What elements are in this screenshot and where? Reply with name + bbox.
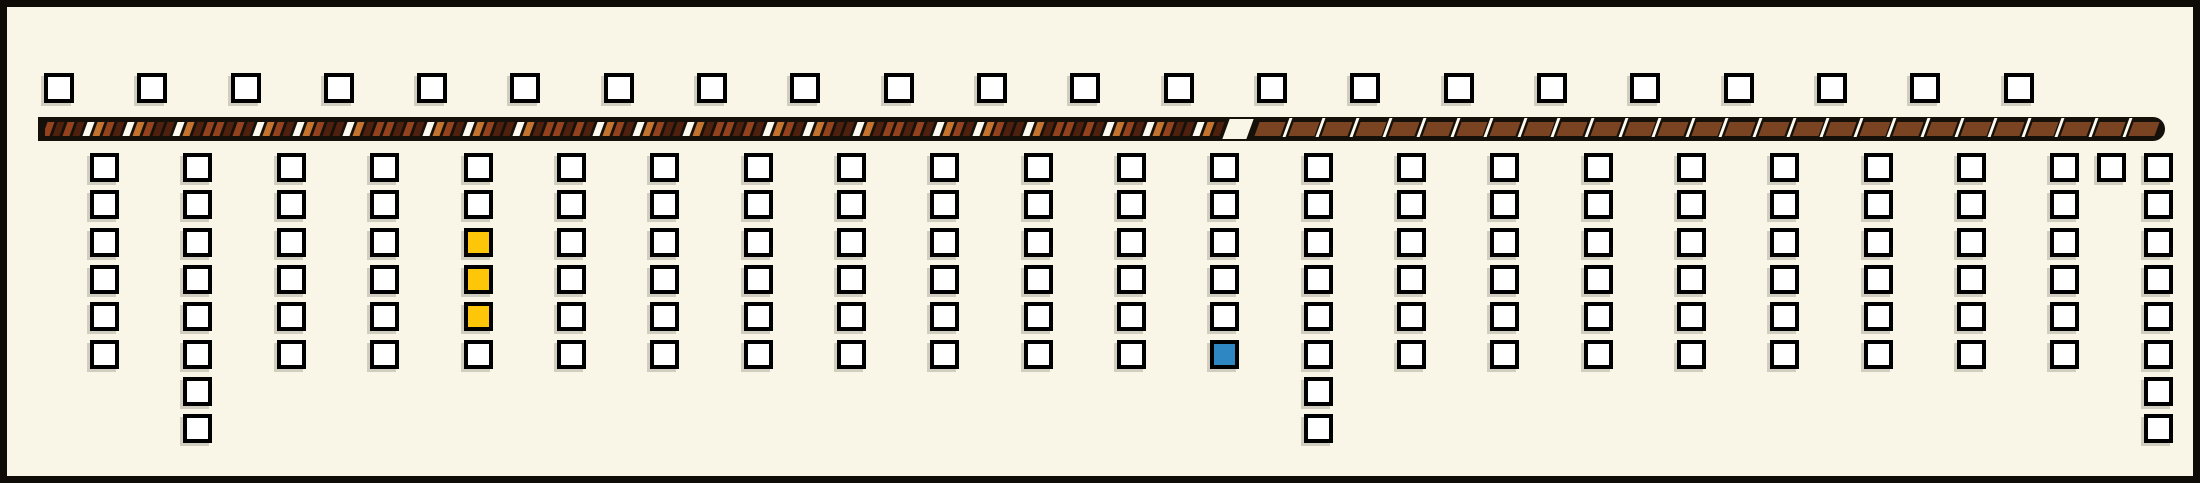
- house-square-white: [557, 265, 586, 294]
- house-square-white: [1397, 190, 1426, 219]
- house-square-white: [370, 228, 399, 257]
- house-square-white: [2050, 302, 2079, 331]
- house-square-white: [1210, 302, 1239, 331]
- house-square-white: [1584, 228, 1613, 257]
- house-square-white: [1210, 190, 1239, 219]
- house-square-white: [744, 228, 773, 257]
- house-square-white: [90, 265, 119, 294]
- house-square-white: [1490, 153, 1519, 182]
- house-square-white: [1584, 153, 1613, 182]
- house-square-white: [557, 153, 586, 182]
- house-square-white: [1210, 153, 1239, 182]
- house-columns: [7, 7, 2193, 476]
- house-square-white: [277, 302, 306, 331]
- house-square-white: [90, 340, 119, 369]
- house-square-white: [1957, 153, 1986, 182]
- house-square-white: [370, 340, 399, 369]
- house-square-white: [930, 340, 959, 369]
- house-square-white: [1864, 228, 1893, 257]
- house-square-white: [1584, 190, 1613, 219]
- house-square-white: [1864, 153, 1893, 182]
- house-square-white: [1584, 340, 1613, 369]
- house-square-white: [1304, 302, 1333, 331]
- house-square-white: [1677, 265, 1706, 294]
- house-square-white: [277, 340, 306, 369]
- house-square-white: [2144, 340, 2173, 369]
- house-square-white: [183, 228, 212, 257]
- house-square-white: [1397, 265, 1426, 294]
- house-square-white: [650, 302, 679, 331]
- diagram-frame: [0, 0, 2200, 483]
- house-square-white: [1024, 228, 1053, 257]
- house-square-white: [1957, 190, 1986, 219]
- house-square-white: [1117, 153, 1146, 182]
- house-square-white: [1957, 228, 1986, 257]
- house-square-white: [2144, 377, 2173, 406]
- house-square-blue: [1210, 340, 1239, 369]
- house-square-white: [90, 190, 119, 219]
- house-square-white: [1304, 153, 1333, 182]
- house-square-white: [1770, 265, 1799, 294]
- house-square-white: [1864, 265, 1893, 294]
- house-square-white: [837, 340, 866, 369]
- house-square-white: [1677, 190, 1706, 219]
- house-square-white: [1397, 153, 1426, 182]
- house-square-white: [1490, 228, 1519, 257]
- house-square-white: [837, 302, 866, 331]
- house-square-white: [277, 265, 306, 294]
- house-square-white: [2050, 190, 2079, 219]
- house-square-yellow: [464, 302, 493, 331]
- house-square-white: [2144, 414, 2173, 443]
- house-square-white: [1210, 228, 1239, 257]
- house-square-white: [1957, 340, 1986, 369]
- house-square-white: [744, 190, 773, 219]
- house-square-white: [1677, 228, 1706, 257]
- house-square-white: [930, 265, 959, 294]
- house-square-white: [2144, 190, 2173, 219]
- house-square-white: [1304, 265, 1333, 294]
- house-square-white: [1770, 190, 1799, 219]
- house-square-white: [1024, 265, 1053, 294]
- house-square-white: [557, 340, 586, 369]
- house-square-white: [744, 340, 773, 369]
- house-square-white: [1864, 190, 1893, 219]
- house-square-white: [90, 228, 119, 257]
- house-square-white: [1304, 340, 1333, 369]
- house-square-white: [1024, 153, 1053, 182]
- house-square-white: [277, 190, 306, 219]
- house-square-white: [744, 153, 773, 182]
- house-square-white: [1117, 190, 1146, 219]
- house-square-white: [1304, 190, 1333, 219]
- house-square-white: [1024, 302, 1053, 331]
- house-square-white: [183, 340, 212, 369]
- house-square-white: [2144, 265, 2173, 294]
- house-square-white: [1304, 377, 1333, 406]
- house-square-white: [837, 265, 866, 294]
- house-square-white: [650, 190, 679, 219]
- house-square-white: [277, 228, 306, 257]
- house-square-white: [1397, 340, 1426, 369]
- house-square-white: [1490, 340, 1519, 369]
- house-square-yellow: [464, 228, 493, 257]
- house-square-white: [744, 265, 773, 294]
- house-square-white: [1304, 228, 1333, 257]
- house-square-white: [1117, 302, 1146, 331]
- house-square-white: [1957, 302, 1986, 331]
- house-square-white: [837, 190, 866, 219]
- house-square-white: [1677, 302, 1706, 331]
- house-square-white: [650, 265, 679, 294]
- house-square-white: [930, 228, 959, 257]
- house-square-yellow: [464, 265, 493, 294]
- house-square-white: [90, 153, 119, 182]
- house-square-white: [370, 153, 399, 182]
- house-square-white: [744, 302, 773, 331]
- house-square-white: [464, 190, 493, 219]
- house-square-white: [1677, 153, 1706, 182]
- house-square-white: [183, 414, 212, 443]
- house-square-white: [1770, 153, 1799, 182]
- house-square-white: [1584, 265, 1613, 294]
- house-square-white: [183, 302, 212, 331]
- house-square-white: [1210, 265, 1239, 294]
- house-square-white: [557, 190, 586, 219]
- house-square-white: [1397, 302, 1426, 331]
- house-square-white: [650, 340, 679, 369]
- house-square-white: [1117, 228, 1146, 257]
- house-square-white: [1397, 228, 1426, 257]
- house-square-white: [1490, 302, 1519, 331]
- house-square-white: [930, 153, 959, 182]
- house-square-white: [1770, 228, 1799, 257]
- house-square-white: [1490, 190, 1519, 219]
- house-square-white: [557, 228, 586, 257]
- house-square-white: [2050, 153, 2079, 182]
- house-square-white: [1957, 265, 1986, 294]
- house-square-white: [2050, 340, 2079, 369]
- house-square-white: [2144, 153, 2173, 182]
- house-square-white: [370, 302, 399, 331]
- house-square-white: [183, 190, 212, 219]
- house-square-white: [1490, 265, 1519, 294]
- house-square-white: [1770, 340, 1799, 369]
- house-square-white: [2144, 302, 2173, 331]
- house-square-white: [1117, 340, 1146, 369]
- house-square-white: [90, 302, 119, 331]
- house-square-white: [1677, 340, 1706, 369]
- house-square-white: [2050, 228, 2079, 257]
- house-square-white: [650, 153, 679, 182]
- house-square-white: [464, 340, 493, 369]
- house-square-white: [1117, 265, 1146, 294]
- house-square-white: [1024, 190, 1053, 219]
- house-square-white: [183, 377, 212, 406]
- house-square-white: [1304, 414, 1333, 443]
- house-square-white: [837, 228, 866, 257]
- house-square-white: [837, 153, 866, 182]
- house-square-white: [183, 153, 212, 182]
- house-square-white: [1864, 340, 1893, 369]
- house-square-white: [2144, 228, 2173, 257]
- house-square-white: [464, 153, 493, 182]
- house-square-white: [1024, 340, 1053, 369]
- house-square-white: [2097, 153, 2126, 182]
- house-square-white: [930, 190, 959, 219]
- house-square-white: [930, 302, 959, 331]
- house-square-white: [1864, 302, 1893, 331]
- house-square-white: [1770, 302, 1799, 331]
- house-square-white: [370, 265, 399, 294]
- house-square-white: [2050, 265, 2079, 294]
- house-square-white: [183, 265, 212, 294]
- house-square-white: [1584, 302, 1613, 331]
- house-square-white: [650, 228, 679, 257]
- house-square-white: [277, 153, 306, 182]
- house-square-white: [370, 190, 399, 219]
- house-square-white: [557, 302, 586, 331]
